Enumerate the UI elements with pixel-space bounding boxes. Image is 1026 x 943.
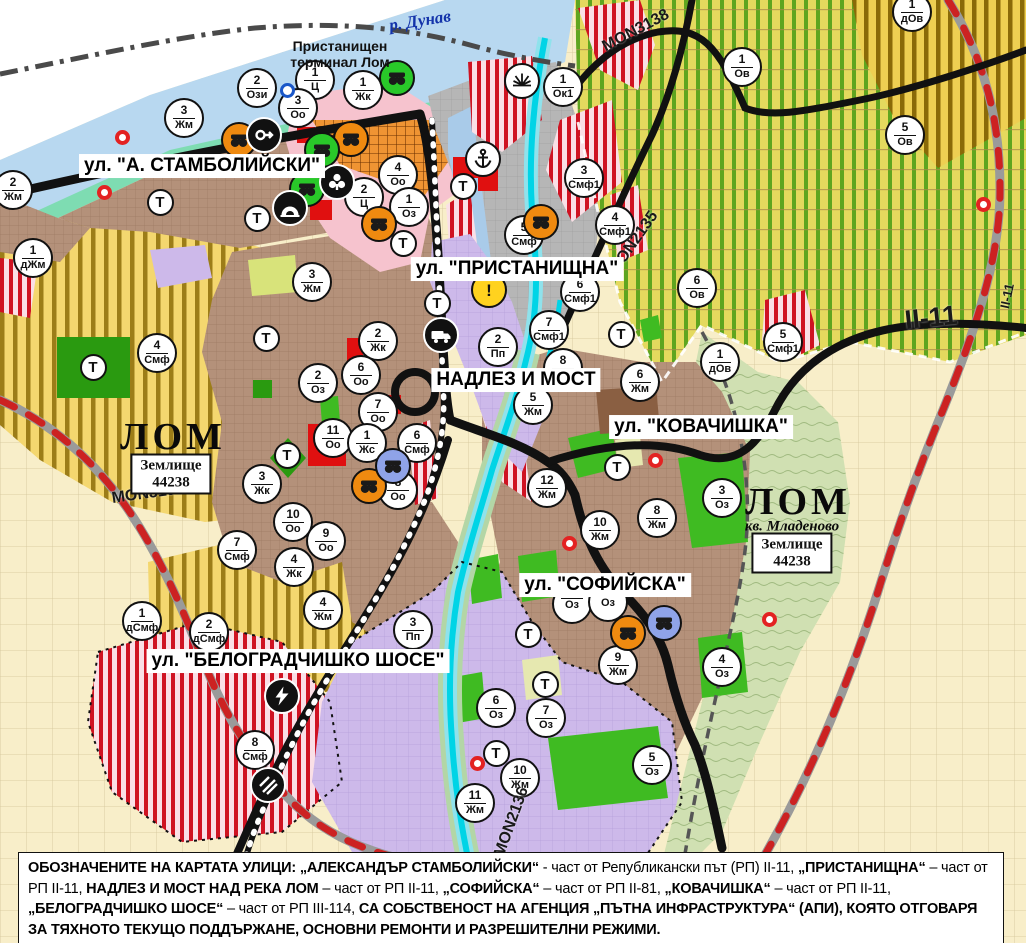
zone-marker: 5Смф1 xyxy=(763,322,803,362)
place-label-terminal: Пристанищен терминал Лом xyxy=(275,38,405,70)
zone-marker: 6Оз xyxy=(476,688,516,728)
zone-marker: 11Жм xyxy=(455,783,495,823)
caption-segment: - част от Републикански път (РП) II-11, xyxy=(539,860,798,876)
zone-marker: 10Жм xyxy=(580,510,620,550)
zone-marker: 1дСмф xyxy=(122,601,162,641)
place-label-river: р. Дунав xyxy=(388,6,452,35)
zone-marker: 2Ози xyxy=(237,68,277,108)
transformer-marker: Т xyxy=(608,321,635,348)
caption-segment: НАДЛЕЗ И МОСТ НАД РЕКА ЛОМ xyxy=(86,881,318,897)
zone-marker: 2Жм xyxy=(0,170,33,210)
transformer-marker: Т xyxy=(604,454,631,481)
blue-ring-icon xyxy=(280,83,295,98)
street-label: НАДЛЕЗ И МОСТ xyxy=(431,368,600,392)
masks-icon xyxy=(523,204,559,240)
zoning-map-lom: 3Жм2Ози1Ц3Оо1Жк1Ок12Жм1дЖм4Смф4Оо2Ц1Оз3Ж… xyxy=(0,0,1026,943)
zone-marker: 4Жм xyxy=(303,590,343,630)
zone-marker: 3Пп xyxy=(393,610,433,650)
zone-marker: 3Жм xyxy=(292,262,332,302)
masks-icon xyxy=(361,206,397,242)
zone-marker: 3Оз xyxy=(702,478,742,518)
caption-segment: „КОВАЧИШКА“ xyxy=(665,881,771,897)
caption-segment: – част от РП II-11, xyxy=(319,881,443,897)
transformer-marker: Т xyxy=(244,205,271,232)
zone-marker: 6Оо xyxy=(341,355,381,395)
caption-segment: „СОФИЙСКА“ xyxy=(443,881,540,897)
road-label: II-11 xyxy=(997,282,1017,310)
transformer-marker: Т xyxy=(253,325,280,352)
landshare-box: Землище44238 xyxy=(751,533,832,574)
zone-marker: 3Смф1 xyxy=(564,158,604,198)
rail-crossing-icon xyxy=(250,767,286,803)
street-label: ул. "БЕЛОГРАДЧИШКО ШОСЕ" xyxy=(147,649,450,673)
tunnel-icon xyxy=(272,190,308,226)
zone-marker: 1дЖм xyxy=(13,238,53,278)
transformer-marker: Т xyxy=(532,671,559,698)
street-label: ул. "СОФИЙСКА" xyxy=(519,573,691,597)
street-label: ул. "ПРИСТАНИЩНА" xyxy=(411,257,624,281)
transformer-marker: Т xyxy=(450,173,477,200)
zone-marker: 4Смф xyxy=(137,333,177,373)
place-label-city: ЛОМ xyxy=(120,418,226,456)
transformer-marker: Т xyxy=(147,189,174,216)
key-arrow-icon xyxy=(246,117,282,153)
point-marker xyxy=(976,197,991,212)
zone-marker: 2Пп xyxy=(478,327,518,367)
markers-overlay: 3Жм2Ози1Ц3Оо1Жк1Ок12Жм1дЖм4Смф4Оо2Ц1Оз3Ж… xyxy=(0,0,1026,943)
transformer-marker: Т xyxy=(274,442,301,469)
zone-marker: 1дОв xyxy=(892,0,932,32)
point-marker xyxy=(562,536,577,551)
street-label: ул. "А. СТАМБОЛИЙСКИ" xyxy=(79,154,325,178)
street-label: ул. "КОВАЧИШКА" xyxy=(609,415,793,439)
zone-marker: 5Ов xyxy=(885,115,925,155)
transformer-marker: Т xyxy=(80,354,107,381)
lightning-icon xyxy=(264,678,300,714)
zone-marker: 1Ок1 xyxy=(543,67,583,107)
zone-marker: 6Ов xyxy=(677,268,717,308)
zone-marker: 12Жм xyxy=(527,468,567,508)
zone-marker: 4Оз xyxy=(702,647,742,687)
anchor-icon xyxy=(465,141,501,177)
zone-marker: 9Оо xyxy=(306,521,346,561)
zone-marker: 1Ов xyxy=(722,47,762,87)
road-label: II-11 xyxy=(903,300,958,336)
landshare-box: Землище44238 xyxy=(130,454,211,495)
zone-marker: 2дСмф xyxy=(189,612,229,652)
truck-icon xyxy=(423,317,459,353)
caption-segment: – част от РП III-114, xyxy=(223,901,359,917)
road-label: MON3138 xyxy=(600,6,673,56)
zone-marker: 7Смф1 xyxy=(529,310,569,350)
caption-segment: – част от РП II-11, xyxy=(771,881,891,897)
zone-marker: 3Жк xyxy=(242,464,282,504)
point-marker xyxy=(470,756,485,771)
svg-text:!: ! xyxy=(486,281,492,300)
road-label: MON2136 xyxy=(491,785,533,860)
zone-marker: 6Жм xyxy=(620,362,660,402)
zone-marker: 4Жк xyxy=(274,547,314,587)
zone-marker: 9Жм xyxy=(598,645,638,685)
zone-marker: 8Жм xyxy=(637,498,677,538)
point-marker xyxy=(115,130,130,145)
sun-fan-icon xyxy=(504,63,540,99)
transformer-marker: Т xyxy=(424,290,451,317)
zone-marker: 5Оз xyxy=(632,745,672,785)
masks-icon xyxy=(610,615,646,651)
zone-marker: 1дОв xyxy=(700,342,740,382)
place-label-city: ЛОМ xyxy=(745,483,851,521)
caption-segment: „ПРИСТАНИЩНА“ xyxy=(798,860,926,876)
masks-icon xyxy=(646,605,682,641)
masks-icon xyxy=(375,448,411,484)
zone-marker: 8Смф xyxy=(235,730,275,770)
point-marker xyxy=(97,185,112,200)
transformer-marker: Т xyxy=(483,740,510,767)
zone-marker: 1Жк xyxy=(343,70,383,110)
caption-segment: ОБОЗНАЧЕНИТЕ НА КАРТАТА УЛИЦИ: „АЛЕКСАНД… xyxy=(28,860,539,876)
zone-marker: 3Жм xyxy=(164,98,204,138)
zone-marker: 7Оз xyxy=(526,698,566,738)
zone-marker: 7Смф xyxy=(217,530,257,570)
point-marker xyxy=(648,453,663,468)
transformer-marker: Т xyxy=(515,621,542,648)
caption-box: ОБОЗНАЧЕНИТЕ НА КАРТАТА УЛИЦИ: „АЛЕКСАНД… xyxy=(18,852,1004,943)
caption-segment: „БЕЛОГРАДЧИШКО ШОСЕ“ xyxy=(28,901,223,917)
point-marker xyxy=(762,612,777,627)
caption-segment: – част от РП II-81, xyxy=(539,881,664,897)
zone-marker: 2Оз xyxy=(298,363,338,403)
